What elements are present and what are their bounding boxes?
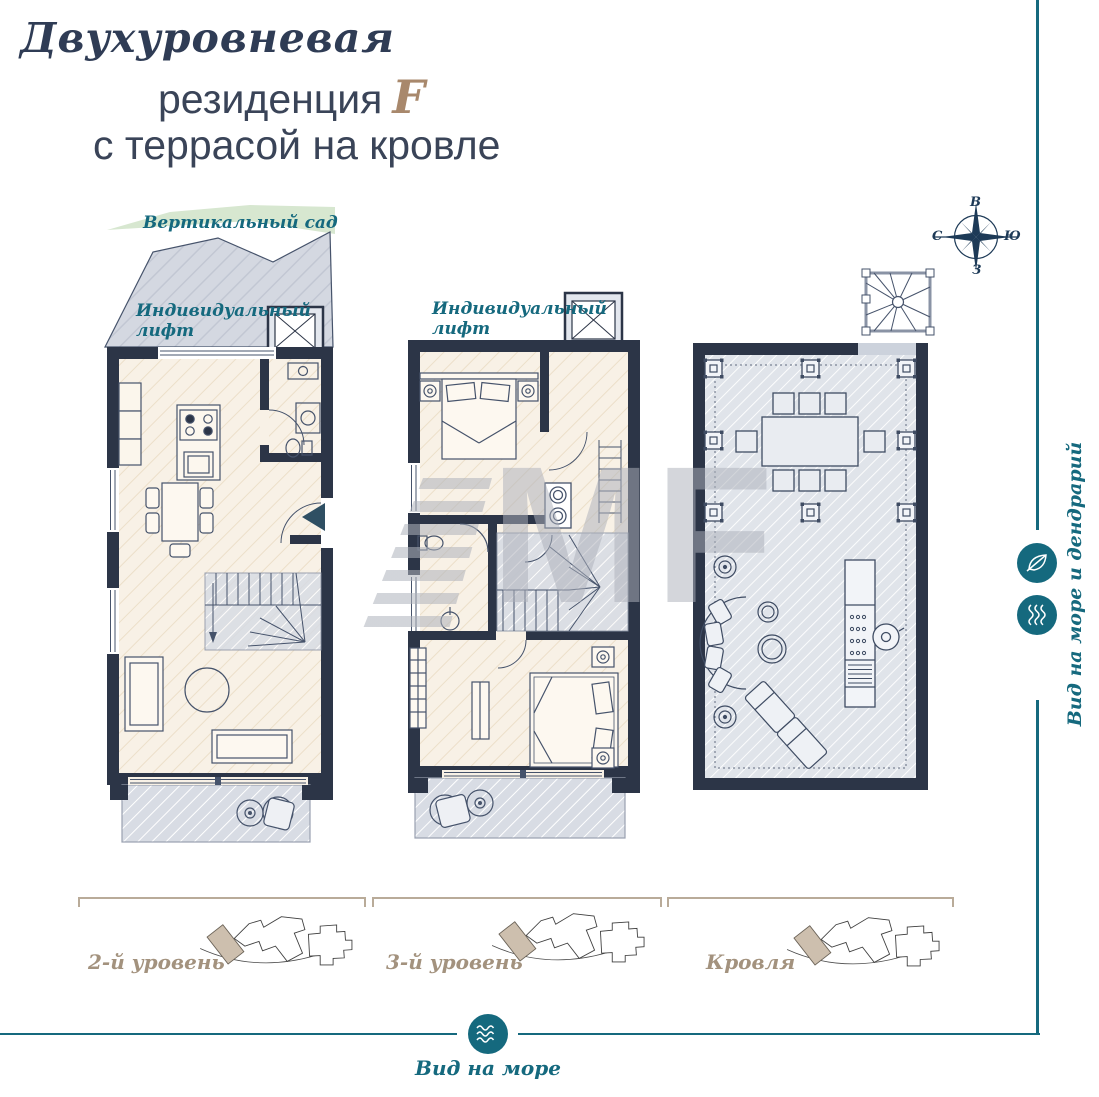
lift-label-level3-line1: Индивидуальный [432, 299, 607, 319]
floorplan-level2 [100, 200, 345, 850]
floorplan-page: Двухуровневая резиденцияF с террасой на … [0, 0, 1099, 1097]
terrace-balcony [110, 777, 333, 842]
lift-label-level2-line1: Индивидуальный [136, 301, 311, 321]
lift-label-level2: Индивидуальный лифт [136, 301, 311, 341]
bracket-level3 [372, 897, 662, 907]
compass-label-north: С [932, 229, 942, 244]
lift-label-level3: Индивидуальный лифт [432, 299, 607, 339]
floorplan-level3 [400, 285, 645, 845]
page-title-line2-text: резиденция [158, 76, 382, 122]
compass-label-south: Ю [1004, 229, 1021, 244]
bracket-roof [667, 897, 954, 907]
sea-view-label: Вид на море [408, 1056, 568, 1080]
leaf-icon [1017, 543, 1057, 583]
site-locator-roof [780, 912, 942, 974]
lift-label-level3-line2: лифт [432, 319, 607, 339]
right-rule-top [1036, 0, 1039, 530]
bracket-level2 [78, 897, 366, 907]
stairwell [497, 533, 628, 631]
garden-label: Вертикальный сад [143, 213, 338, 233]
sea-rule-right [518, 1033, 1040, 1035]
page-title-line1: Двухуровневая [20, 14, 395, 62]
floorplan-roof [688, 265, 940, 795]
spiral-stair [862, 269, 934, 335]
page-title-line2: резиденцияF [158, 70, 425, 124]
staircase [205, 573, 321, 650]
sea-waves-icon [468, 1014, 508, 1054]
side-view-label: Вид на море и дендрарий [1064, 434, 1086, 734]
washer-stack [545, 483, 571, 528]
level2-label: 2-й уровень [88, 950, 225, 974]
compass-label-east: В [970, 195, 981, 210]
roof-label: Кровля [706, 950, 795, 974]
waves-icon [1017, 595, 1057, 635]
residence-letter: F [392, 70, 425, 124]
lift-label-level2-line2: лифт [136, 321, 311, 341]
sea-rule-left [0, 1033, 457, 1035]
right-rule-bottom [1036, 700, 1039, 1035]
compass-label-west: З [972, 263, 981, 278]
level3-label: 3-й уровень [386, 950, 523, 974]
page-title-line3: с террасой на кровле [93, 122, 500, 169]
